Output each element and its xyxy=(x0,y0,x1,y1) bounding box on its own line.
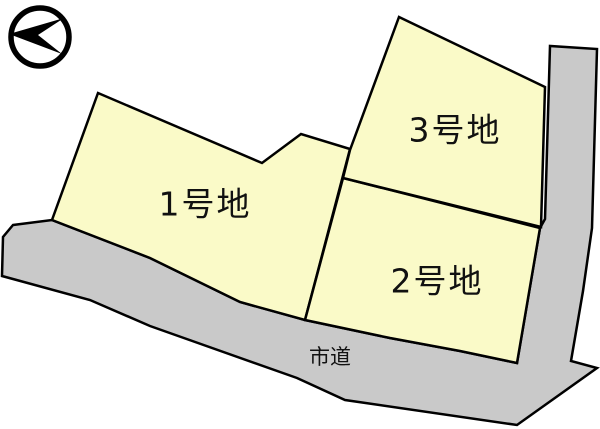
parcel-label-lot-3: 3号地 xyxy=(409,111,502,150)
parcel-label-lot-2: 2号地 xyxy=(391,262,484,301)
parcel-label-lot-1: 1号地 xyxy=(159,185,252,224)
plot-map-svg: 1号地2号地3号地市道 xyxy=(0,0,600,429)
road-label: 市道 xyxy=(309,345,351,369)
land-plot-diagram: 1号地2号地3号地市道 xyxy=(0,0,600,429)
